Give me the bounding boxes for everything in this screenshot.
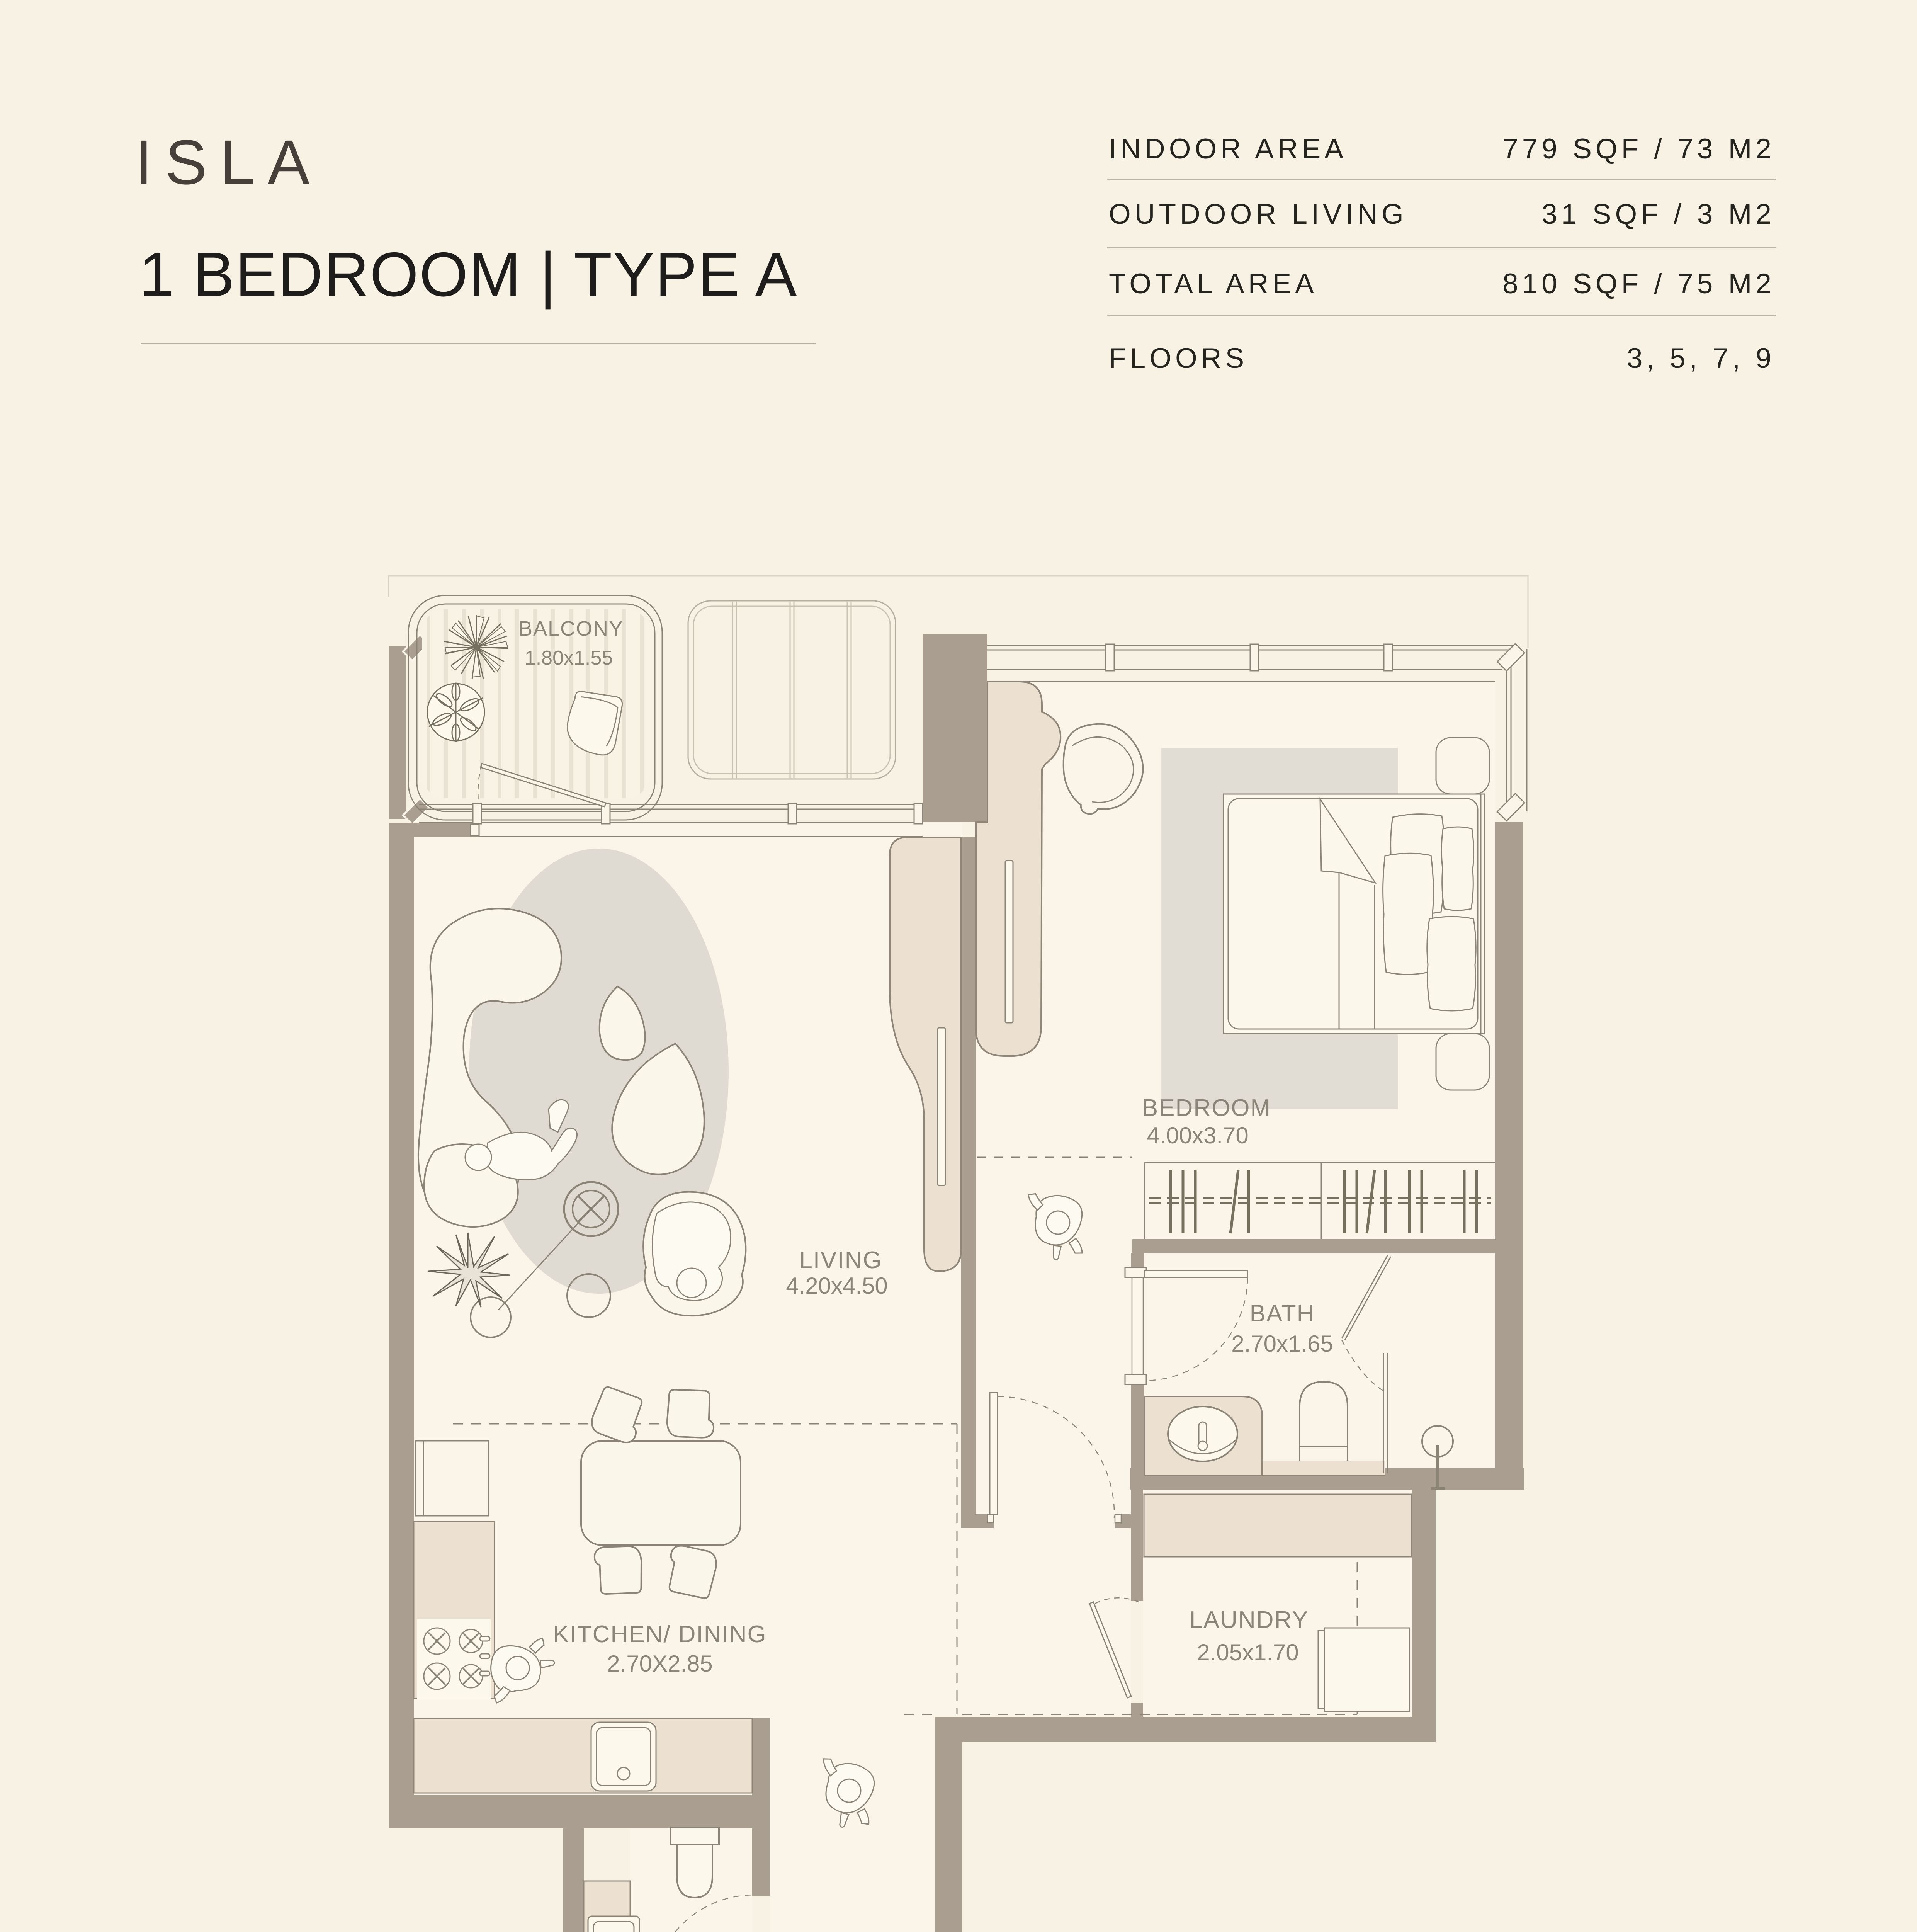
svg-text:4.00x3.70: 4.00x3.70 [1147,1122,1249,1148]
svg-text:4.20x4.50: 4.20x4.50 [786,1273,888,1299]
svg-text:2.05x1.70: 2.05x1.70 [1197,1639,1299,1665]
svg-text:31 SQF / 3 M2: 31 SQF / 3 M2 [1541,199,1775,230]
svg-text:1 BEDROOM | TYPE A: 1 BEDROOM | TYPE A [139,240,798,310]
svg-text:KITCHEN/ DINING: KITCHEN/ DINING [553,1621,767,1648]
svg-text:2.70x1.65: 2.70x1.65 [1231,1331,1333,1357]
svg-text:BEDROOM: BEDROOM [1142,1095,1271,1121]
svg-text:TOTAL AREA: TOTAL AREA [1109,268,1318,299]
svg-text:OUTDOOR LIVING: OUTDOOR LIVING [1109,199,1407,230]
svg-text:810 SQF / 75 M2: 810 SQF / 75 M2 [1502,268,1775,299]
svg-text:BALCONY: BALCONY [518,617,624,640]
svg-text:3, 5, 7, 9: 3, 5, 7, 9 [1627,343,1775,374]
svg-text:2.70X2.85: 2.70X2.85 [607,1651,713,1677]
svg-text:LIVING: LIVING [799,1247,882,1274]
svg-text:BATH: BATH [1250,1300,1315,1327]
svg-text:779 SQF / 73 M2: 779 SQF / 73 M2 [1502,133,1775,165]
svg-text:INDOOR AREA: INDOOR AREA [1109,133,1347,165]
svg-text:1.80x1.55: 1.80x1.55 [525,647,613,669]
svg-text:ISLA: ISLA [135,127,322,197]
svg-text:LAUNDRY: LAUNDRY [1189,1607,1309,1633]
svg-text:FLOORS: FLOORS [1109,343,1248,374]
